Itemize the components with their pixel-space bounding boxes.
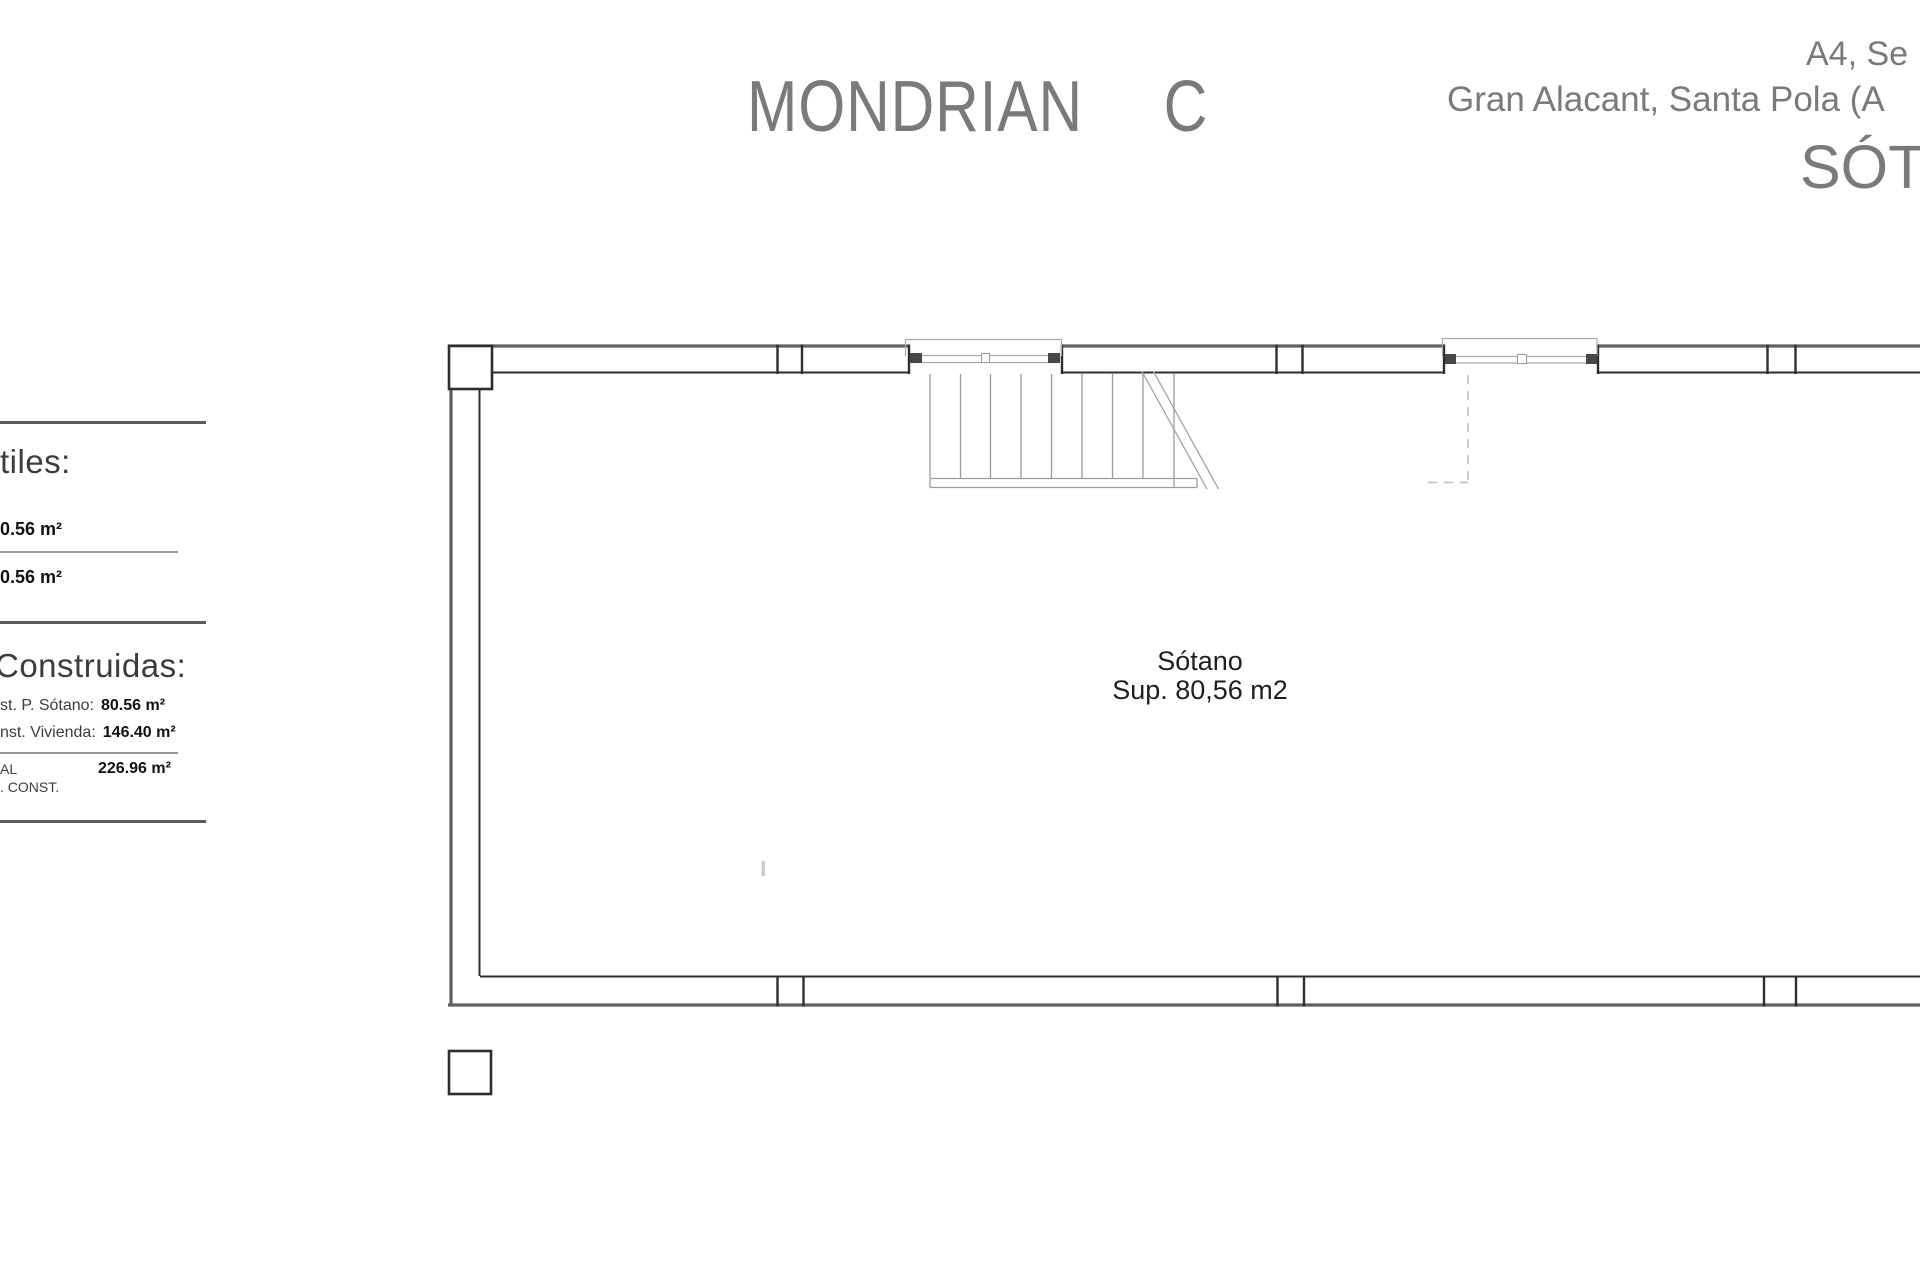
stair-lines (930, 374, 1197, 488)
room-label: Sótano Sup. 80,56 m2 (1085, 647, 1315, 705)
stair-break-diagonals (1142, 372, 1219, 490)
window-thin-lines (906, 339, 1598, 364)
page: { "title": { "main": "MONDRIAN", "varian… (0, 0, 1920, 1280)
projection-dashed-lines (1428, 375, 1468, 483)
room-area: Sup. 80,56 m2 (1085, 676, 1315, 705)
floor-plan-drawing (0, 0, 1920, 1280)
floor-mark (762, 861, 766, 876)
corner-column (449, 346, 492, 389)
room-name: Sótano (1085, 647, 1315, 676)
detached-column (449, 1051, 491, 1094)
